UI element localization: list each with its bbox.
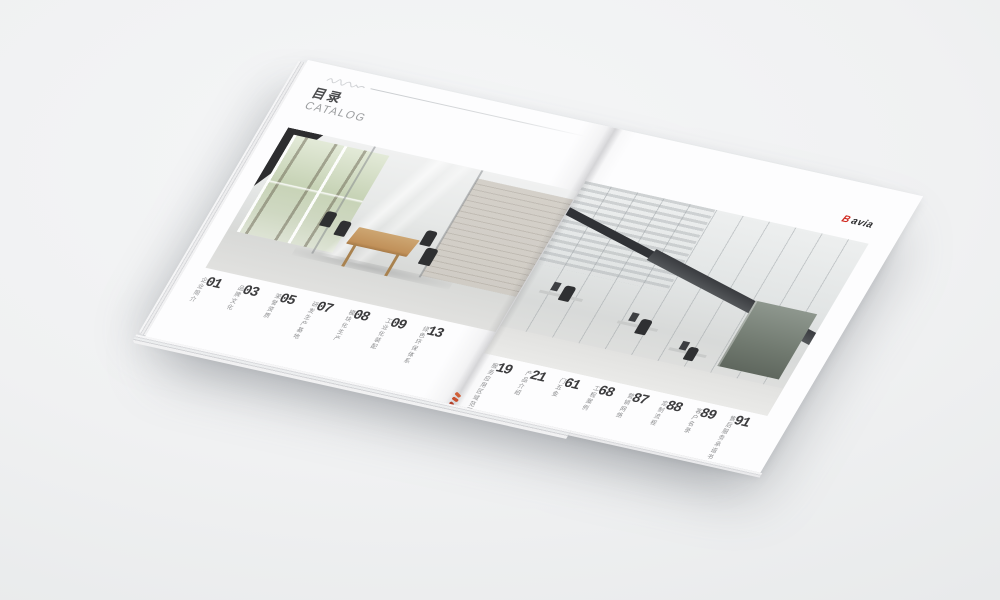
toc-entry: 绿色环保体系 13 (400, 322, 446, 368)
brand-logo: Bavia (838, 214, 875, 231)
toc-entry-label: 模块化生产 (330, 309, 356, 342)
toc-entry: 企业简介 01 (178, 273, 224, 319)
toc-entry-label: 工业化装配 (367, 317, 393, 350)
scene-background: { "catalog": { "title": "目录", "subtitle"… (0, 0, 1000, 600)
toc-entry: 工业化装配 09 (363, 314, 409, 360)
toc-entry: 模块化生产 08 (326, 306, 372, 352)
toc-entry-label: 研发生产基地 (289, 300, 318, 340)
logo-text: avia (849, 216, 876, 231)
catalog-book: 目录 CATALOG 企业简介 01 (145, 60, 923, 473)
toc-entry: 研发生产基地 07 (289, 298, 335, 344)
header-rule (371, 88, 587, 137)
toc-entry: 荣誉资质 05 (252, 290, 298, 336)
toc-entry-label: 绿色环保体系 (400, 325, 429, 365)
toc-entry: 品牌文化 03 (215, 281, 261, 327)
